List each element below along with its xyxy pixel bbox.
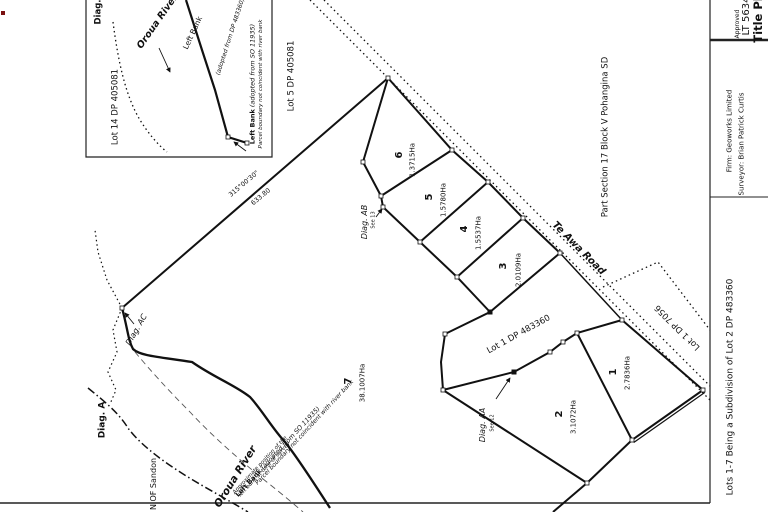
diag-ab-see: See 13 (371, 211, 376, 228)
plan-description: Lots 1-7 Being a Subdivision of Lot 2 DP… (726, 279, 735, 496)
boundary-vertex-marker (561, 340, 565, 344)
boundary-vertex-marker (558, 251, 562, 255)
boundary-vertex-marker-filled (512, 370, 517, 375)
inset-lot14-label: Lot 14 DP 405081 (112, 69, 121, 145)
survey-plan-page: Title Plan LT 5634 Approved Surveyor: Br… (0, 0, 768, 512)
plan-id-label: LT 5634 (742, 0, 753, 35)
inset-left-bank-note: Left Bank (adopted from SO 11935) (250, 24, 257, 144)
part-section-label: Part Section 17 Block V Pohangina SD (602, 57, 611, 218)
lot-3-number: 3 (499, 263, 510, 270)
town-of-sandon-label: N OF Sandon (150, 458, 158, 510)
lot-7-area: 38.1007Ha (359, 364, 366, 403)
boundary-vertex-marker (486, 180, 490, 184)
inset-diag-label: Diag. (95, 0, 104, 25)
boundary-vertex-marker (226, 135, 230, 139)
lot5-dp405081-label: Lot 5 DP 405081 (288, 41, 297, 112)
scan-artifact-dot (1, 11, 5, 15)
lot-5-area: 1.5780Ha (440, 183, 447, 217)
lot-4-area: 1.5537Ha (475, 216, 482, 250)
lot-2-area: 3.1072Ha (570, 400, 577, 434)
boundary-vertex-marker (120, 306, 124, 310)
diag-aa-see: See 12 (490, 414, 495, 431)
diag-aa-label: Diag. AA (479, 408, 487, 442)
inset-left-bank-note-bold: Left Bank (249, 109, 257, 144)
title-plan-label: Title Plan (752, 0, 764, 43)
boundary-vertex-marker (620, 318, 624, 322)
boundary-vertex-marker (418, 240, 422, 244)
approved-label: Approved (735, 10, 741, 39)
lot-7-number: 7 (344, 378, 355, 385)
boundary-vertex-marker-filled (488, 310, 493, 315)
boundary-vertex-marker (585, 481, 589, 485)
boundary-vertex-marker (441, 388, 445, 392)
boundary-vertex-marker (443, 332, 447, 336)
boundary-vertex-marker (381, 205, 385, 209)
boundary-vertex-marker (379, 194, 383, 198)
boundary-vertex-marker (630, 438, 634, 442)
lot-4-number: 4 (460, 226, 471, 233)
lot-2-number: 2 (555, 411, 566, 418)
firm-label: Firm: Geoworks Limited (726, 90, 733, 173)
lot-5-number: 5 (425, 194, 436, 201)
inset-parcel-note: Parcel boundary not coincident with rive… (259, 20, 265, 149)
inset-left-bank-note-rest: (adopted from SO 11935) (249, 24, 257, 109)
lot-1-area: 2.7836Ha (624, 356, 631, 390)
diag-a-label: Diag. A (98, 402, 107, 439)
boundary-vertex-marker (386, 76, 390, 80)
boundary-vertex-marker (521, 216, 525, 220)
lot-6-area: 1.3715Ha (409, 143, 416, 177)
boundary-vertex-marker (548, 350, 552, 354)
boundary-vertex-marker (455, 275, 459, 279)
boundary-vertex-marker (450, 148, 454, 152)
boundary-vertex-marker (361, 160, 365, 164)
boundary-vertex-marker (701, 388, 705, 392)
boundary-vertex-marker (575, 331, 579, 335)
lot-3-area: 2.0109Ha (515, 253, 522, 287)
surveyor-label: Surveyor: Brian Patrick Curtis (738, 93, 745, 196)
lot-6-number: 6 (395, 152, 406, 159)
diag-ab-label: Diag. AB (361, 205, 369, 239)
lot-1-number: 1 (609, 369, 620, 376)
